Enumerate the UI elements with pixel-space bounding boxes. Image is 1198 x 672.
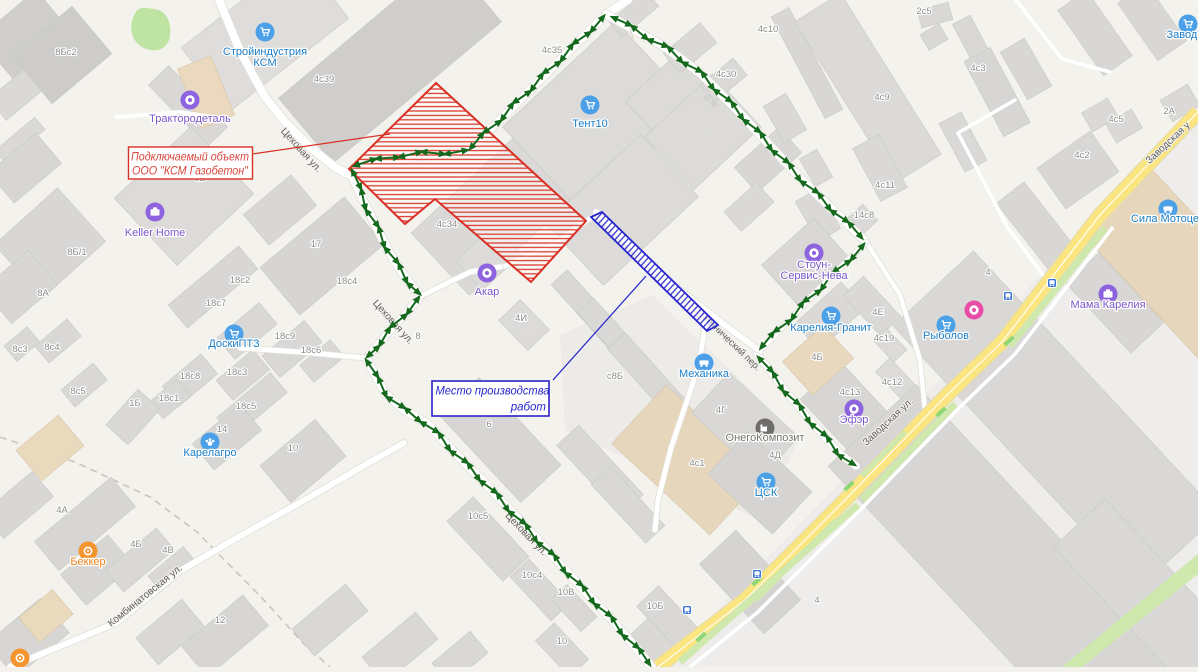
svg-text:ЗаводТе: ЗаводТе xyxy=(1167,29,1198,41)
svg-text:18с3: 18с3 xyxy=(227,367,248,378)
svg-text:14с8: 14с8 xyxy=(854,210,875,221)
svg-text:18с7: 18с7 xyxy=(206,298,227,309)
svg-text:8А: 8А xyxy=(37,288,49,299)
svg-text:Тент10: Тент10 xyxy=(572,118,608,130)
svg-text:Keller Home: Keller Home xyxy=(125,227,186,239)
svg-text:ДоскиПТЗ: ДоскиПТЗ xyxy=(208,338,260,350)
svg-text:10с4: 10с4 xyxy=(522,570,543,581)
svg-text:10Б: 10Б xyxy=(647,601,664,612)
svg-text:Сервис-Нева: Сервис-Нева xyxy=(780,270,848,282)
svg-text:18с1: 18с1 xyxy=(159,393,180,404)
svg-text:работ: работ xyxy=(510,402,547,414)
svg-text:4с10: 4с10 xyxy=(758,24,779,35)
svg-text:Карелагро: Карелагро xyxy=(183,447,236,459)
svg-text:Трактородеталь: Трактородеталь xyxy=(149,113,231,125)
svg-text:4с19: 4с19 xyxy=(874,333,895,344)
svg-text:с8Б: с8Б xyxy=(607,371,623,382)
svg-text:Рыболов: Рыболов xyxy=(923,330,969,342)
svg-text:18с4: 18с4 xyxy=(337,276,358,287)
svg-text:10: 10 xyxy=(557,636,568,647)
svg-text:4с13: 4с13 xyxy=(840,387,861,398)
svg-text:Подключаемый объект: Подключаемый объект xyxy=(131,152,249,164)
svg-text:6: 6 xyxy=(486,419,491,430)
svg-text:4с39: 4с39 xyxy=(314,74,335,85)
svg-text:8Бс2: 8Бс2 xyxy=(55,47,77,58)
svg-text:10В: 10В xyxy=(558,587,575,598)
svg-text:4с12: 4с12 xyxy=(882,377,903,388)
svg-text:17: 17 xyxy=(311,239,322,250)
svg-text:4с5: 4с5 xyxy=(1108,114,1123,125)
svg-text:18с9: 18с9 xyxy=(275,331,296,342)
svg-text:ОнегоКомпозит: ОнегоКомпозит xyxy=(726,432,805,444)
svg-text:4с3: 4с3 xyxy=(970,63,985,74)
svg-text:4с2: 4с2 xyxy=(1074,150,1089,161)
svg-text:Эфэр: Эфэр xyxy=(840,414,869,426)
svg-text:8Б/1: 8Б/1 xyxy=(67,247,86,258)
svg-text:14: 14 xyxy=(217,424,228,435)
svg-text:Мама Карелия: Мама Карелия xyxy=(1070,299,1145,311)
svg-text:4Д: 4Д xyxy=(769,450,781,461)
svg-text:10с5: 10с5 xyxy=(468,511,489,522)
svg-text:8: 8 xyxy=(415,331,420,342)
svg-text:ООО "КСМ Газобетон": ООО "КСМ Газобетон" xyxy=(132,166,249,178)
svg-text:4Г: 4Г xyxy=(716,405,726,416)
svg-text:8с3: 8с3 xyxy=(12,344,27,355)
svg-text:1Б: 1Б xyxy=(129,398,141,409)
svg-text:18с5: 18с5 xyxy=(236,401,257,412)
svg-text:4с30: 4с30 xyxy=(716,69,737,80)
svg-text:2А: 2А xyxy=(1163,106,1175,117)
svg-text:4: 4 xyxy=(814,595,819,606)
svg-text:4В: 4В xyxy=(162,545,174,556)
svg-text:Беккер: Беккер xyxy=(70,556,105,568)
svg-text:4с1: 4с1 xyxy=(689,458,704,469)
svg-text:4А: 4А xyxy=(56,505,68,516)
svg-text:ЦСК: ЦСК xyxy=(755,487,778,499)
svg-text:2с5: 2с5 xyxy=(916,6,931,17)
svg-text:КСМ: КСМ xyxy=(253,57,276,69)
svg-text:Акар: Акар xyxy=(475,286,500,298)
svg-text:18с6: 18с6 xyxy=(301,345,322,356)
svg-text:4с11: 4с11 xyxy=(875,180,895,191)
svg-text:10: 10 xyxy=(288,443,299,454)
svg-text:4И: 4И xyxy=(515,313,527,324)
svg-text:Место производства: Место производства xyxy=(436,386,550,398)
svg-text:Карелия-Гранит: Карелия-Гранит xyxy=(790,322,871,334)
svg-text:18с8: 18с8 xyxy=(180,371,201,382)
svg-text:4Е: 4Е xyxy=(872,307,884,318)
svg-text:Механика: Механика xyxy=(679,368,730,380)
svg-text:Сила Мотоцен: Сила Мотоцен xyxy=(1131,213,1198,225)
svg-text:4Б: 4Б xyxy=(811,352,823,363)
svg-text:18с2: 18с2 xyxy=(230,275,251,286)
svg-text:4с35: 4с35 xyxy=(542,45,563,56)
svg-text:4Б: 4Б xyxy=(130,539,142,550)
svg-text:12: 12 xyxy=(215,615,226,626)
svg-text:4с34: 4с34 xyxy=(437,219,458,230)
svg-text:8с5: 8с5 xyxy=(70,386,85,397)
svg-text:8с4: 8с4 xyxy=(44,342,59,353)
svg-text:4: 4 xyxy=(985,267,990,278)
svg-text:4с9: 4с9 xyxy=(874,92,889,103)
